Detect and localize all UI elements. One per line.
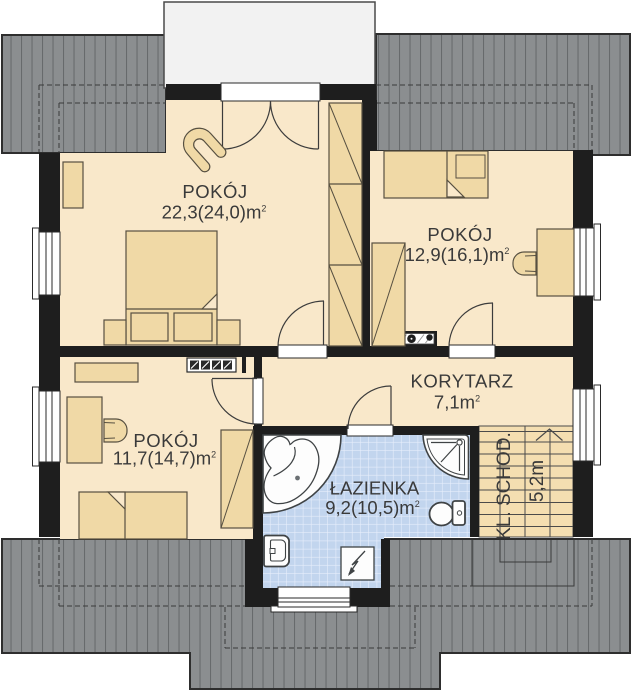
svg-text:ŁAZIENKA: ŁAZIENKA: [330, 478, 420, 499]
svg-text:POKÓJ: POKÓJ: [427, 224, 492, 245]
svg-text:5,2m: 5,2m: [527, 460, 548, 502]
svg-text:12,9(16,1)m2: 12,9(16,1)m2: [405, 244, 510, 265]
svg-text:KORYTARZ: KORYTARZ: [410, 371, 513, 392]
svg-text:9,2(10,5)m2: 9,2(10,5)m2: [325, 497, 419, 518]
svg-text:7,1m2: 7,1m2: [434, 392, 480, 413]
svg-text:KL. SCHOD.: KL. SCHOD.: [494, 432, 515, 540]
svg-text:POKÓJ: POKÓJ: [182, 181, 247, 202]
svg-text:11,7(14,7)m2: 11,7(14,7)m2: [113, 448, 216, 469]
svg-text:22,3(24,0)m2: 22,3(24,0)m2: [162, 202, 267, 223]
